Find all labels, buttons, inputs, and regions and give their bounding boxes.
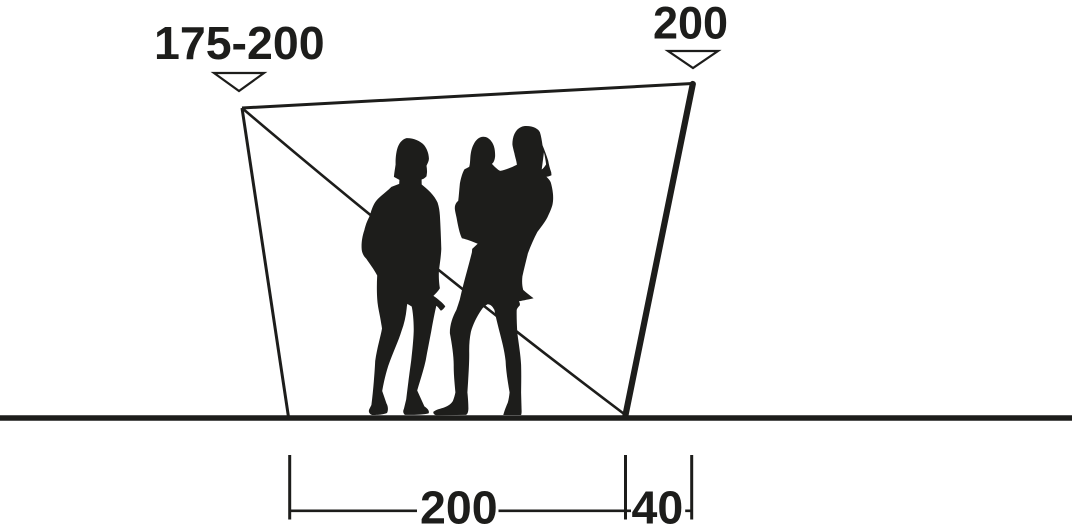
svg-text:200: 200 xyxy=(653,0,728,49)
svg-text:175-200: 175-200 xyxy=(154,17,325,69)
svg-text:200: 200 xyxy=(420,482,498,528)
svg-text:40: 40 xyxy=(632,482,684,528)
